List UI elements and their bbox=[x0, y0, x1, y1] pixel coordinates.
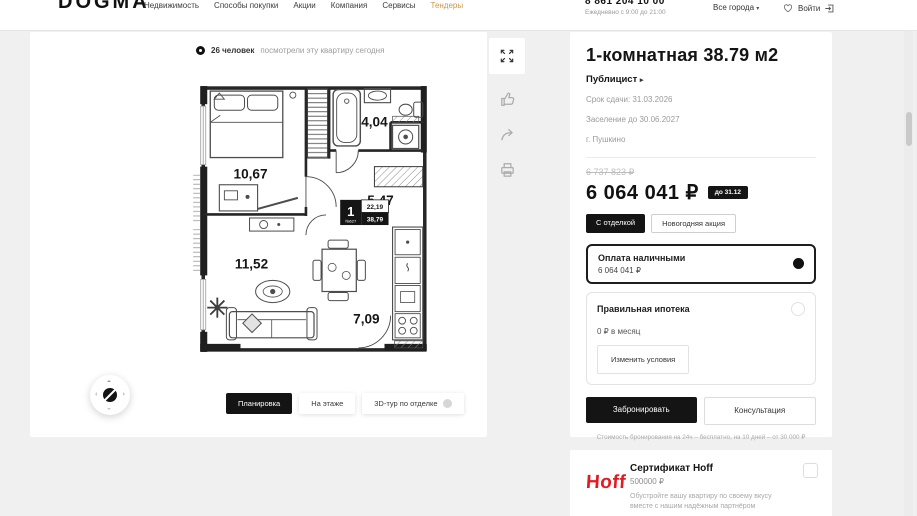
views-counter: 26 человек посмотрели эту квартиру сегод… bbox=[196, 46, 384, 55]
page-scrollbar-track[interactable] bbox=[904, 30, 913, 516]
hoff-amount: 500000 ₽ bbox=[630, 477, 818, 486]
tab-floor[interactable]: На этаже bbox=[299, 393, 355, 414]
main-nav: Недвижимость Способы покупки Акции Компа… bbox=[144, 1, 463, 10]
logo[interactable]: DOGMA bbox=[58, 0, 150, 14]
apartment-details-panel: 1-комнатная 38.79 м2 Публицист ▸ Срок сд… bbox=[570, 32, 832, 437]
cash-option-title: Оплата наличными bbox=[598, 253, 685, 263]
old-price: 6 737 823 ₽ bbox=[586, 167, 816, 178]
mortgage-monthly: 0 ₽ в месяц bbox=[597, 327, 805, 336]
nav-company[interactable]: Компания bbox=[331, 1, 368, 10]
mortgage-option-title: Правильная ипотека bbox=[597, 304, 690, 314]
chevron-right-icon: ▸ bbox=[640, 77, 644, 84]
work-hours: Ежедневно с 9:00 до 21:00 bbox=[585, 9, 666, 16]
share-icon[interactable] bbox=[498, 125, 517, 144]
kitchen-hatch bbox=[395, 341, 423, 348]
login-button[interactable]: Войти bbox=[798, 3, 835, 14]
settlement-text: Заселение до 30.06.2027 bbox=[586, 114, 816, 125]
eye-icon bbox=[196, 46, 205, 55]
unit-number: 1 bbox=[347, 204, 354, 219]
like-icon[interactable] bbox=[498, 90, 517, 109]
consult-button[interactable]: Консультация bbox=[704, 397, 817, 425]
hoff-checkbox[interactable] bbox=[803, 463, 818, 478]
exterior-hatch-2 bbox=[193, 229, 200, 273]
exterior-hatch-1 bbox=[193, 175, 200, 223]
city-text: г. Пушкино bbox=[586, 134, 816, 145]
project-name: Публицист bbox=[586, 74, 637, 85]
mortgage-option-header[interactable]: Правильная ипотека bbox=[597, 302, 805, 316]
nav-tenders[interactable]: Тендеры bbox=[431, 1, 464, 10]
city-selector-label: Все города bbox=[713, 3, 754, 12]
tab-plan-label: Планировка bbox=[238, 399, 280, 408]
deadline-text: Срок сдачи: 31.03.2026 bbox=[586, 94, 816, 105]
unit-total-area: 38,79 bbox=[367, 217, 384, 224]
change-conditions-button[interactable]: Изменить условия bbox=[597, 345, 689, 374]
unit-badge: 1 №627 22,19 38,79 bbox=[340, 200, 388, 225]
book-button[interactable]: Забронировать bbox=[586, 397, 697, 423]
label-bathroom-area: 4,04 bbox=[361, 114, 388, 129]
tab-floor-label: На этаже bbox=[311, 399, 343, 408]
tab-3d-tour-label: 3D-тур по отделке bbox=[374, 399, 437, 408]
price-deadline-badge: до 31.12 bbox=[708, 186, 748, 199]
fullscreen-button[interactable] bbox=[489, 38, 525, 74]
hoff-certificate-card: Hoff Сертификат Hoff 500000 ₽ Обустройте… bbox=[570, 450, 832, 516]
page-title: 1-комнатная 38.79 м2 bbox=[586, 45, 816, 66]
hall-cabinet bbox=[374, 167, 422, 187]
window-bedroom bbox=[201, 106, 206, 164]
unit-code: №627 bbox=[345, 219, 357, 224]
tag-new-year-promo[interactable]: Новогодняя акция bbox=[651, 214, 736, 233]
radio-selected-icon[interactable] bbox=[793, 258, 804, 269]
fullscreen-icon bbox=[500, 49, 514, 63]
hoff-logo: Hoff bbox=[585, 472, 627, 494]
payment-option-cash[interactable]: Оплата наличными 6 064 041 ₽ bbox=[586, 244, 816, 284]
radio-unselected-icon[interactable] bbox=[791, 302, 805, 316]
nav-promos[interactable]: Акции bbox=[293, 1, 315, 10]
towel-rail bbox=[393, 116, 419, 122]
views-count: 26 человек bbox=[211, 46, 254, 55]
site-header: DOGMA Недвижимость Способы покупки Акции… bbox=[0, 0, 917, 31]
phone-number[interactable]: 8 861 204 10 00 bbox=[585, 0, 666, 7]
tab-plan[interactable]: Планировка bbox=[226, 393, 292, 414]
page: DOGMA Недвижимость Способы покупки Акции… bbox=[0, 0, 917, 516]
compass-icon[interactable] bbox=[90, 375, 130, 415]
tag-finishing[interactable]: С отделкой bbox=[586, 214, 645, 233]
login-icon bbox=[824, 3, 835, 14]
favorites-heart-icon[interactable] bbox=[782, 2, 794, 14]
divider bbox=[586, 157, 816, 158]
lock-icon bbox=[443, 399, 452, 408]
cash-option-value: 6 064 041 ₽ bbox=[598, 266, 685, 275]
hoff-title: Сертификат Hoff bbox=[630, 463, 818, 474]
floorplan-drawing[interactable]: 10,67 4,04 5,47 11,52 7,09 1 №627 22,19 … bbox=[193, 78, 435, 362]
print-icon[interactable] bbox=[498, 160, 517, 179]
tags-row: С отделкой Новогодняя акция bbox=[586, 214, 816, 233]
floorplan-card: 26 человек посмотрели эту квартиру сегод… bbox=[30, 32, 487, 437]
unit-living-area: 22,19 bbox=[367, 204, 384, 211]
views-text: посмотрели эту квартиру сегодня bbox=[260, 46, 384, 55]
label-kitchen-area: 7,09 bbox=[353, 312, 380, 327]
booking-note: Стоимость бронирования на 24ч – бесплатн… bbox=[586, 434, 816, 441]
view-tabs: Планировка На этаже 3D-тур по отделке bbox=[226, 393, 464, 414]
wardrobe bbox=[307, 89, 327, 158]
chevron-down-icon: ▾ bbox=[756, 6, 759, 12]
phone-block: 8 861 204 10 00 Ежедневно с 9:00 до 21:0… bbox=[585, 0, 666, 16]
nav-services[interactable]: Сервисы bbox=[382, 1, 415, 10]
tab-3d-tour[interactable]: 3D-тур по отделке bbox=[362, 393, 463, 414]
label-living-area: 11,52 bbox=[235, 256, 269, 271]
hoff-description: Обустройте вашу квартиру по своему вкусу… bbox=[630, 492, 780, 512]
city-selector[interactable]: Все города ▾ bbox=[713, 3, 759, 12]
login-label: Войти bbox=[798, 4, 820, 13]
label-bedroom-area: 10,67 bbox=[234, 167, 268, 182]
window-living bbox=[201, 279, 206, 329]
price: 6 064 041 ₽ bbox=[586, 180, 699, 205]
project-link[interactable]: Публицист ▸ bbox=[586, 74, 816, 85]
payment-option-mortgage: Правильная ипотека 0 ₽ в месяц Изменить … bbox=[586, 292, 816, 385]
page-scrollbar-thumb[interactable] bbox=[906, 112, 912, 146]
nav-realty[interactable]: Недвижимость bbox=[144, 1, 199, 10]
nav-purchase-methods[interactable]: Способы покупки bbox=[214, 1, 278, 10]
